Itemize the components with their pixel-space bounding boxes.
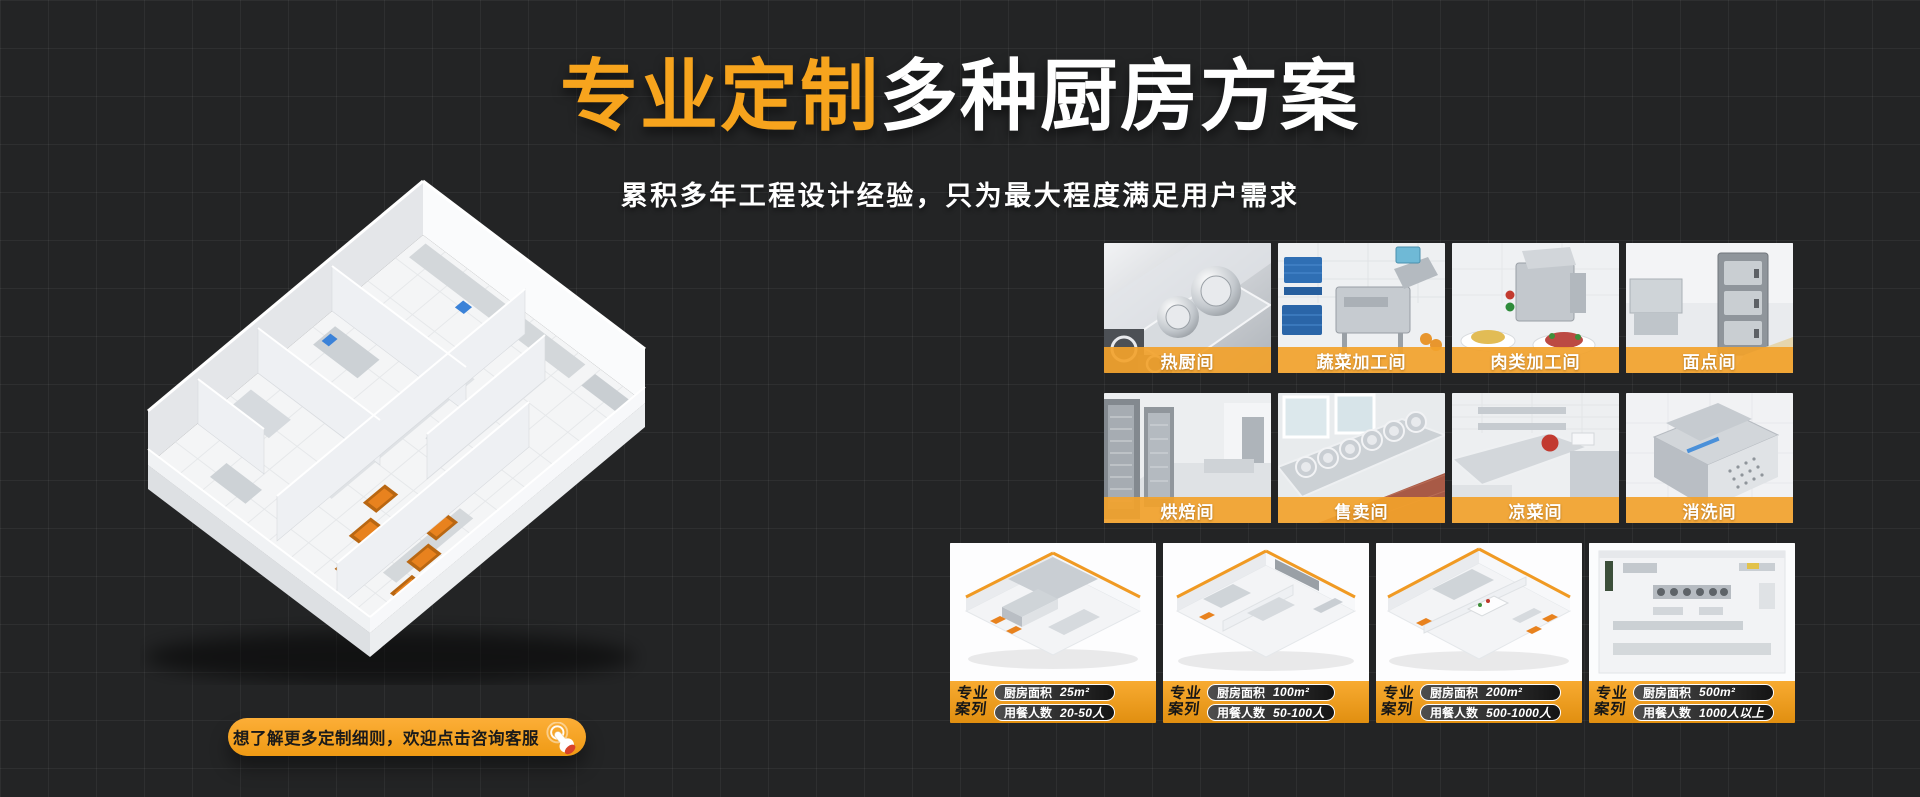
diners-label: 用餐人数 [1217,704,1265,721]
case-card-100m2[interactable]: 专业 案列 厨房面积 100m² 用餐人数 50-100人 [1163,543,1369,723]
case-card-footer: 专业 案列 厨房面积 25m² 用餐人数 20-50人 [950,681,1156,723]
case-badge-line1: 专业 [1169,686,1203,702]
promo-banner: 专业定制多种厨房方案 累积多年工程设计经验，只为最大程度满足用户需求 [0,0,1920,797]
gallery-card-pastry-room[interactable]: 面点间 [1626,243,1793,373]
gallery-card-vegetable-processing[interactable]: 蔬菜加工间 [1278,243,1445,373]
case-badge: 专业 案列 [1593,686,1628,718]
case-room-render [950,543,1156,681]
gallery-label-band: 消洗间 [1626,497,1793,523]
case-badge: 专业 案列 [1380,686,1415,718]
diners-value: 50-100人 [1273,704,1324,721]
area-value: 100m² [1273,685,1309,699]
diners-pill: 用餐人数 500-1000人 [1420,704,1561,721]
gallery-card-selling-room[interactable]: 售卖间 [1278,393,1445,523]
gallery-label: 凉菜间 [1509,498,1563,523]
diners-value: 20-50人 [1060,704,1105,721]
gallery-label-band: 蔬菜加工间 [1278,347,1445,373]
case-stats: 厨房面积 200m² 用餐人数 500-1000人 [1420,684,1561,721]
gallery-label: 肉类加工间 [1491,348,1581,373]
case-badge: 专业 案列 [954,686,989,718]
gallery-card-dishwashing-room[interactable]: 消洗间 [1626,393,1793,523]
diners-label: 用餐人数 [1643,704,1691,721]
gallery-label: 消洗间 [1683,498,1737,523]
diners-value: 500-1000人 [1486,704,1551,721]
gallery-label: 烘焙间 [1161,498,1215,523]
consult-cta-label: 想了解更多定制细则，欢迎点击咨询客服 [233,725,539,749]
gallery-label-band: 凉菜间 [1452,497,1619,523]
case-room-render [1163,543,1369,681]
kitchen-area-pill: 厨房面积 25m² [994,684,1115,701]
page-title-rest: 多种厨房方案 [880,52,1360,140]
diners-pill: 用餐人数 50-100人 [1207,704,1334,721]
case-room-render [1376,543,1582,681]
gallery-card-cold-dish-room[interactable]: 凉菜间 [1452,393,1619,523]
room-gallery: 热厨间 蔬菜加工间 [1104,243,1793,523]
click-hand-icon [545,722,581,758]
case-badge-line2: 案列 [1593,702,1627,718]
page-title-highlight: 专业定制 [560,52,880,140]
diners-pill: 用餐人数 20-50人 [994,704,1115,721]
case-row: 专业 案列 厨房面积 25m² 用餐人数 20-50人 [950,543,1795,723]
area-value: 500m² [1699,685,1735,699]
case-card-25m2[interactable]: 专业 案列 厨房面积 25m² 用餐人数 20-50人 [950,543,1156,723]
gallery-label: 蔬菜加工间 [1317,348,1407,373]
kitchen-area-pill: 厨房面积 500m² [1633,684,1774,701]
area-value: 200m² [1486,685,1522,699]
gallery-label-band: 肉类加工间 [1452,347,1619,373]
area-label: 厨房面积 [1004,684,1052,701]
area-label: 厨房面积 [1643,684,1691,701]
case-card-500m2[interactable]: 专业 案列 厨房面积 500m² 用餐人数 1000人以上 [1589,543,1795,723]
case-badge-line2: 案列 [954,702,988,718]
diners-label: 用餐人数 [1004,704,1052,721]
gallery-card-hot-kitchen[interactable]: 热厨间 [1104,243,1271,373]
gallery-card-meat-processing[interactable]: 肉类加工间 [1452,243,1619,373]
gallery-label-band: 热厨间 [1104,347,1271,373]
case-badge: 专业 案列 [1167,686,1202,718]
gallery-label-band: 面点间 [1626,347,1793,373]
case-room-render [1589,543,1795,681]
case-badge-line1: 专业 [1595,686,1629,702]
case-card-footer: 专业 案列 厨房面积 500m² 用餐人数 1000人以上 [1589,681,1795,723]
area-value: 25m² [1060,685,1089,699]
case-card-footer: 专业 案列 厨房面积 200m² 用餐人数 500-1000人 [1376,681,1582,723]
page-title: 专业定制多种厨房方案 [0,52,1920,142]
isometric-kitchen-floorplan [140,165,800,685]
gallery-label-band: 烘焙间 [1104,497,1271,523]
area-label: 厨房面积 [1217,684,1265,701]
gallery-label: 售卖间 [1335,498,1389,523]
gallery-card-baking-room[interactable]: 烘焙间 [1104,393,1271,523]
area-label: 厨房面积 [1430,684,1478,701]
gallery-label-band: 售卖间 [1278,497,1445,523]
case-card-footer: 专业 案列 厨房面积 100m² 用餐人数 50-100人 [1163,681,1369,723]
diners-pill: 用餐人数 1000人以上 [1633,704,1774,721]
case-badge-line2: 案列 [1380,702,1414,718]
case-stats: 厨房面积 100m² 用餐人数 50-100人 [1207,684,1334,721]
diners-value: 1000人以上 [1699,704,1764,721]
case-stats: 厨房面积 500m² 用餐人数 1000人以上 [1633,684,1774,721]
case-card-200m2[interactable]: 专业 案列 厨房面积 200m² 用餐人数 500-1000人 [1376,543,1582,723]
case-badge-line2: 案列 [1167,702,1201,718]
consult-cta-button[interactable]: 想了解更多定制细则，欢迎点击咨询客服 [228,718,586,756]
diners-label: 用餐人数 [1430,704,1478,721]
case-stats: 厨房面积 25m² 用餐人数 20-50人 [994,684,1115,721]
gallery-label: 热厨间 [1161,348,1215,373]
case-badge-line1: 专业 [1382,686,1416,702]
kitchen-area-pill: 厨房面积 200m² [1420,684,1561,701]
case-badge-line1: 专业 [956,686,990,702]
gallery-label: 面点间 [1683,348,1737,373]
kitchen-area-pill: 厨房面积 100m² [1207,684,1334,701]
